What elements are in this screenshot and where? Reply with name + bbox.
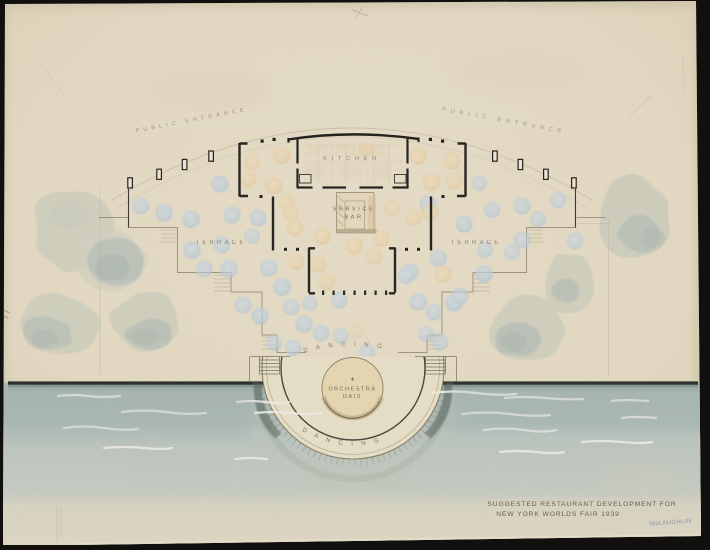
svg-text:KITCHEN: KITCHEN	[323, 156, 381, 162]
svg-text:TERRACE: TERRACE	[195, 240, 246, 246]
svg-text:BAR: BAR	[344, 215, 363, 221]
svg-text:ORCHESTRA: ORCHESTRA	[328, 387, 376, 393]
svg-text:SUGGESTED RESTAURANT DEVELOPME: SUGGESTED RESTAURANT DEVELOPMENT FOR	[487, 501, 676, 508]
svg-text:TERRACE: TERRACE	[450, 240, 501, 246]
svg-text:DAIS: DAIS	[343, 394, 362, 400]
svg-text:NEW YORK WORLDS FAIR 1939: NEW YORK WORLDS FAIR 1939	[496, 511, 619, 518]
svg-text:SERVICE: SERVICE	[333, 207, 376, 213]
